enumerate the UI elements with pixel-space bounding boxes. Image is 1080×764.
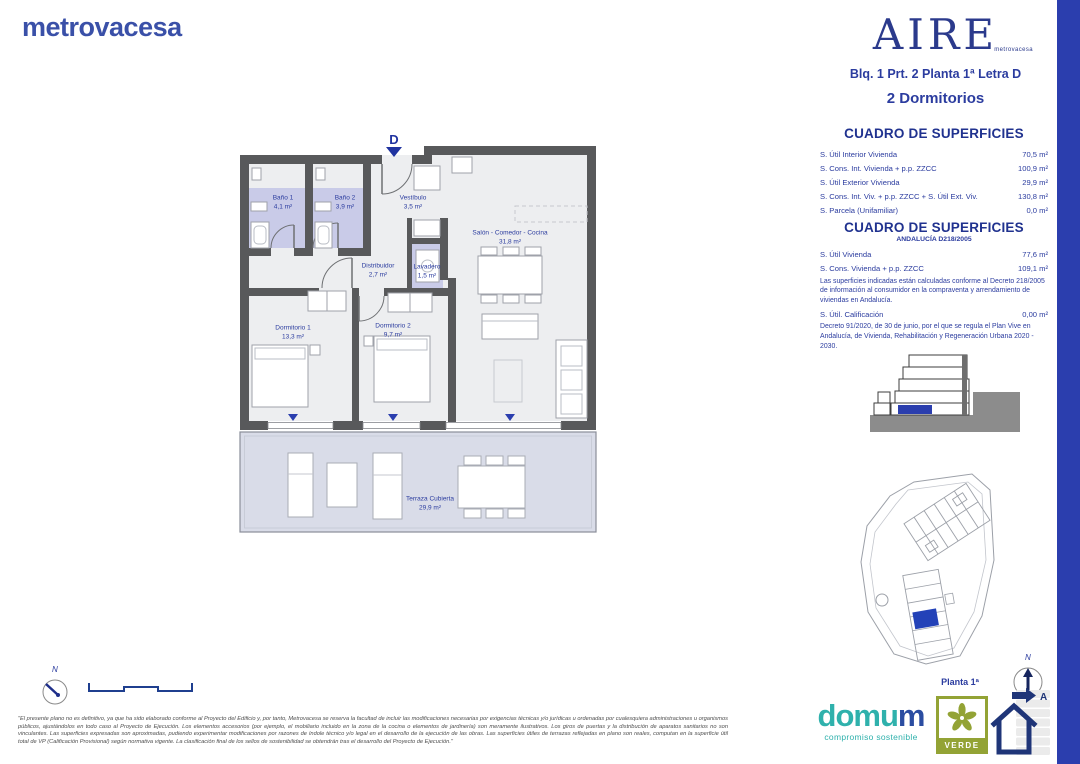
- table-row: S. Parcela (Unifamiliar)0,0 m²: [820, 203, 1048, 217]
- room-label-dormitorio1: Dormitorio 113,3 m²: [275, 324, 310, 343]
- verde-wordmark: VERDE: [944, 741, 979, 750]
- building-section-diagram: [862, 346, 1037, 442]
- entry-threshold: [382, 155, 412, 164]
- row-value: 130,8 m²: [1018, 192, 1048, 201]
- andalucia-table-title: CUADRO DE SUPERFICIES: [820, 220, 1048, 235]
- site-plan-map: [852, 460, 1047, 670]
- verde-certification-logo: VERDE: [936, 696, 988, 754]
- aire-logo: AIRE metrovacesa: [828, 14, 1043, 64]
- room-label-vestibulo: Vestíbulo3,5 m²: [400, 194, 427, 213]
- row-label: S. Útil Vivienda: [820, 250, 871, 259]
- row-value: 0,00 m²: [1022, 310, 1048, 319]
- row-value: 77,6 m²: [1022, 250, 1048, 259]
- row-label: S. Útil Interior Vivienda: [820, 150, 897, 159]
- table-row: S. Útil Vivienda77,6 m²: [820, 248, 1048, 262]
- room-label-terraza: Terraza Cubierta29,9 m²: [406, 495, 454, 514]
- surfaces-table-title: CUADRO DE SUPERFICIES: [820, 126, 1048, 141]
- aire-logo-word: AIRE: [873, 10, 998, 59]
- site-plan-unit-highlight: [912, 608, 939, 629]
- energy-rating-house-icon: A: [986, 686, 1058, 760]
- domum-tagline: compromiso sostenible: [806, 732, 936, 742]
- surfaces-table: CUADRO DE SUPERFICIES S. Útil Interior V…: [820, 126, 1048, 217]
- row-value: 29,9 m²: [1022, 178, 1048, 187]
- room-label-distribuidor: Distribuidor2,7 m²: [362, 262, 395, 281]
- room-label-banio1: Baño 14,1 m²: [273, 194, 294, 213]
- windows: [268, 423, 561, 429]
- legal-disclaimer: "El presente plano no es definitivo, ya …: [18, 716, 728, 747]
- row-value: 70,5 m²: [1022, 150, 1048, 159]
- row-label: S. Útil. Calificación: [820, 310, 883, 319]
- row-label: S. Útil Exterior Vivienda: [820, 178, 900, 187]
- unit-reference: Blq. 1 Prt. 2 Planta 1ª Letra D: [828, 67, 1043, 81]
- row-label: S. Parcela (Unifamiliar): [820, 206, 898, 215]
- row-value: 100,9 m²: [1018, 164, 1048, 173]
- row-value: 109,1 m²: [1018, 264, 1048, 273]
- header-block: AIRE metrovacesa Blq. 1 Prt. 2 Planta 1ª…: [828, 14, 1043, 107]
- row-value: 0,0 m²: [1026, 206, 1048, 215]
- unit-letter-label: D: [389, 132, 398, 147]
- room-label-dormitorio2: Dormitorio 29,7 m²: [375, 322, 410, 341]
- decreto-218-note: Las superficies indicadas están calculad…: [820, 277, 1048, 306]
- table-row: S. Útil. Calificación0,00 m²: [820, 308, 1048, 322]
- north-compass-left: N: [36, 660, 82, 706]
- scale-bar: [88, 680, 198, 696]
- row-label: S. Cons. Int. Vivienda + p.p. ZZCC: [820, 164, 937, 173]
- bedroom-count: 2 Dormitorios: [828, 90, 1043, 107]
- room-label-salon: Salón - Comedor - Cocina31,8 m²: [472, 229, 547, 248]
- table-row: S. Cons. Int. Vivienda + p.p. ZZCC100,9 …: [820, 162, 1048, 176]
- north-label: N: [52, 665, 58, 674]
- aire-logo-sub: metrovacesa: [994, 47, 1033, 53]
- north-label: N: [1025, 653, 1031, 662]
- table-row: S. Útil Exterior Vivienda29,9 m²: [820, 176, 1048, 190]
- table-row: S. Cons. Int. Viv. + p.p. ZZCC + S. Útil…: [820, 189, 1048, 203]
- lower-building-block: [903, 568, 963, 661]
- section-floor-highlight: [898, 405, 932, 414]
- table-row: S. Cons. Vivienda + p.p. ZZCC109,1 m²: [820, 262, 1048, 276]
- domum-logo: domum compromiso sostenible: [806, 700, 936, 742]
- right-accent-bar: [1057, 0, 1080, 764]
- row-label: S. Cons. Vivienda + p.p. ZZCC: [820, 264, 924, 273]
- row-label: S. Cons. Int. Viv. + p.p. ZZCC + S. Útil…: [820, 192, 978, 201]
- metrovacesa-logo: metrovacesa: [22, 12, 182, 43]
- rating-letter: A: [1040, 692, 1047, 703]
- room-label-banio2: Baño 23,9 m²: [335, 194, 356, 213]
- andalucia-table-subtitle: ANDALUCÍA D218/2005: [820, 236, 1048, 243]
- table-row: S. Útil Interior Vivienda70,5 m²: [820, 148, 1048, 162]
- andalucia-surfaces-table: CUADRO DE SUPERFICIES ANDALUCÍA D218/200…: [820, 220, 1048, 353]
- upper-building-block: [904, 483, 990, 560]
- room-label-lavadero: Lavadero1,5 m²: [413, 263, 440, 282]
- brochure-page: metrovacesa AIRE metrovacesa Blq. 1 Prt.…: [0, 0, 1080, 764]
